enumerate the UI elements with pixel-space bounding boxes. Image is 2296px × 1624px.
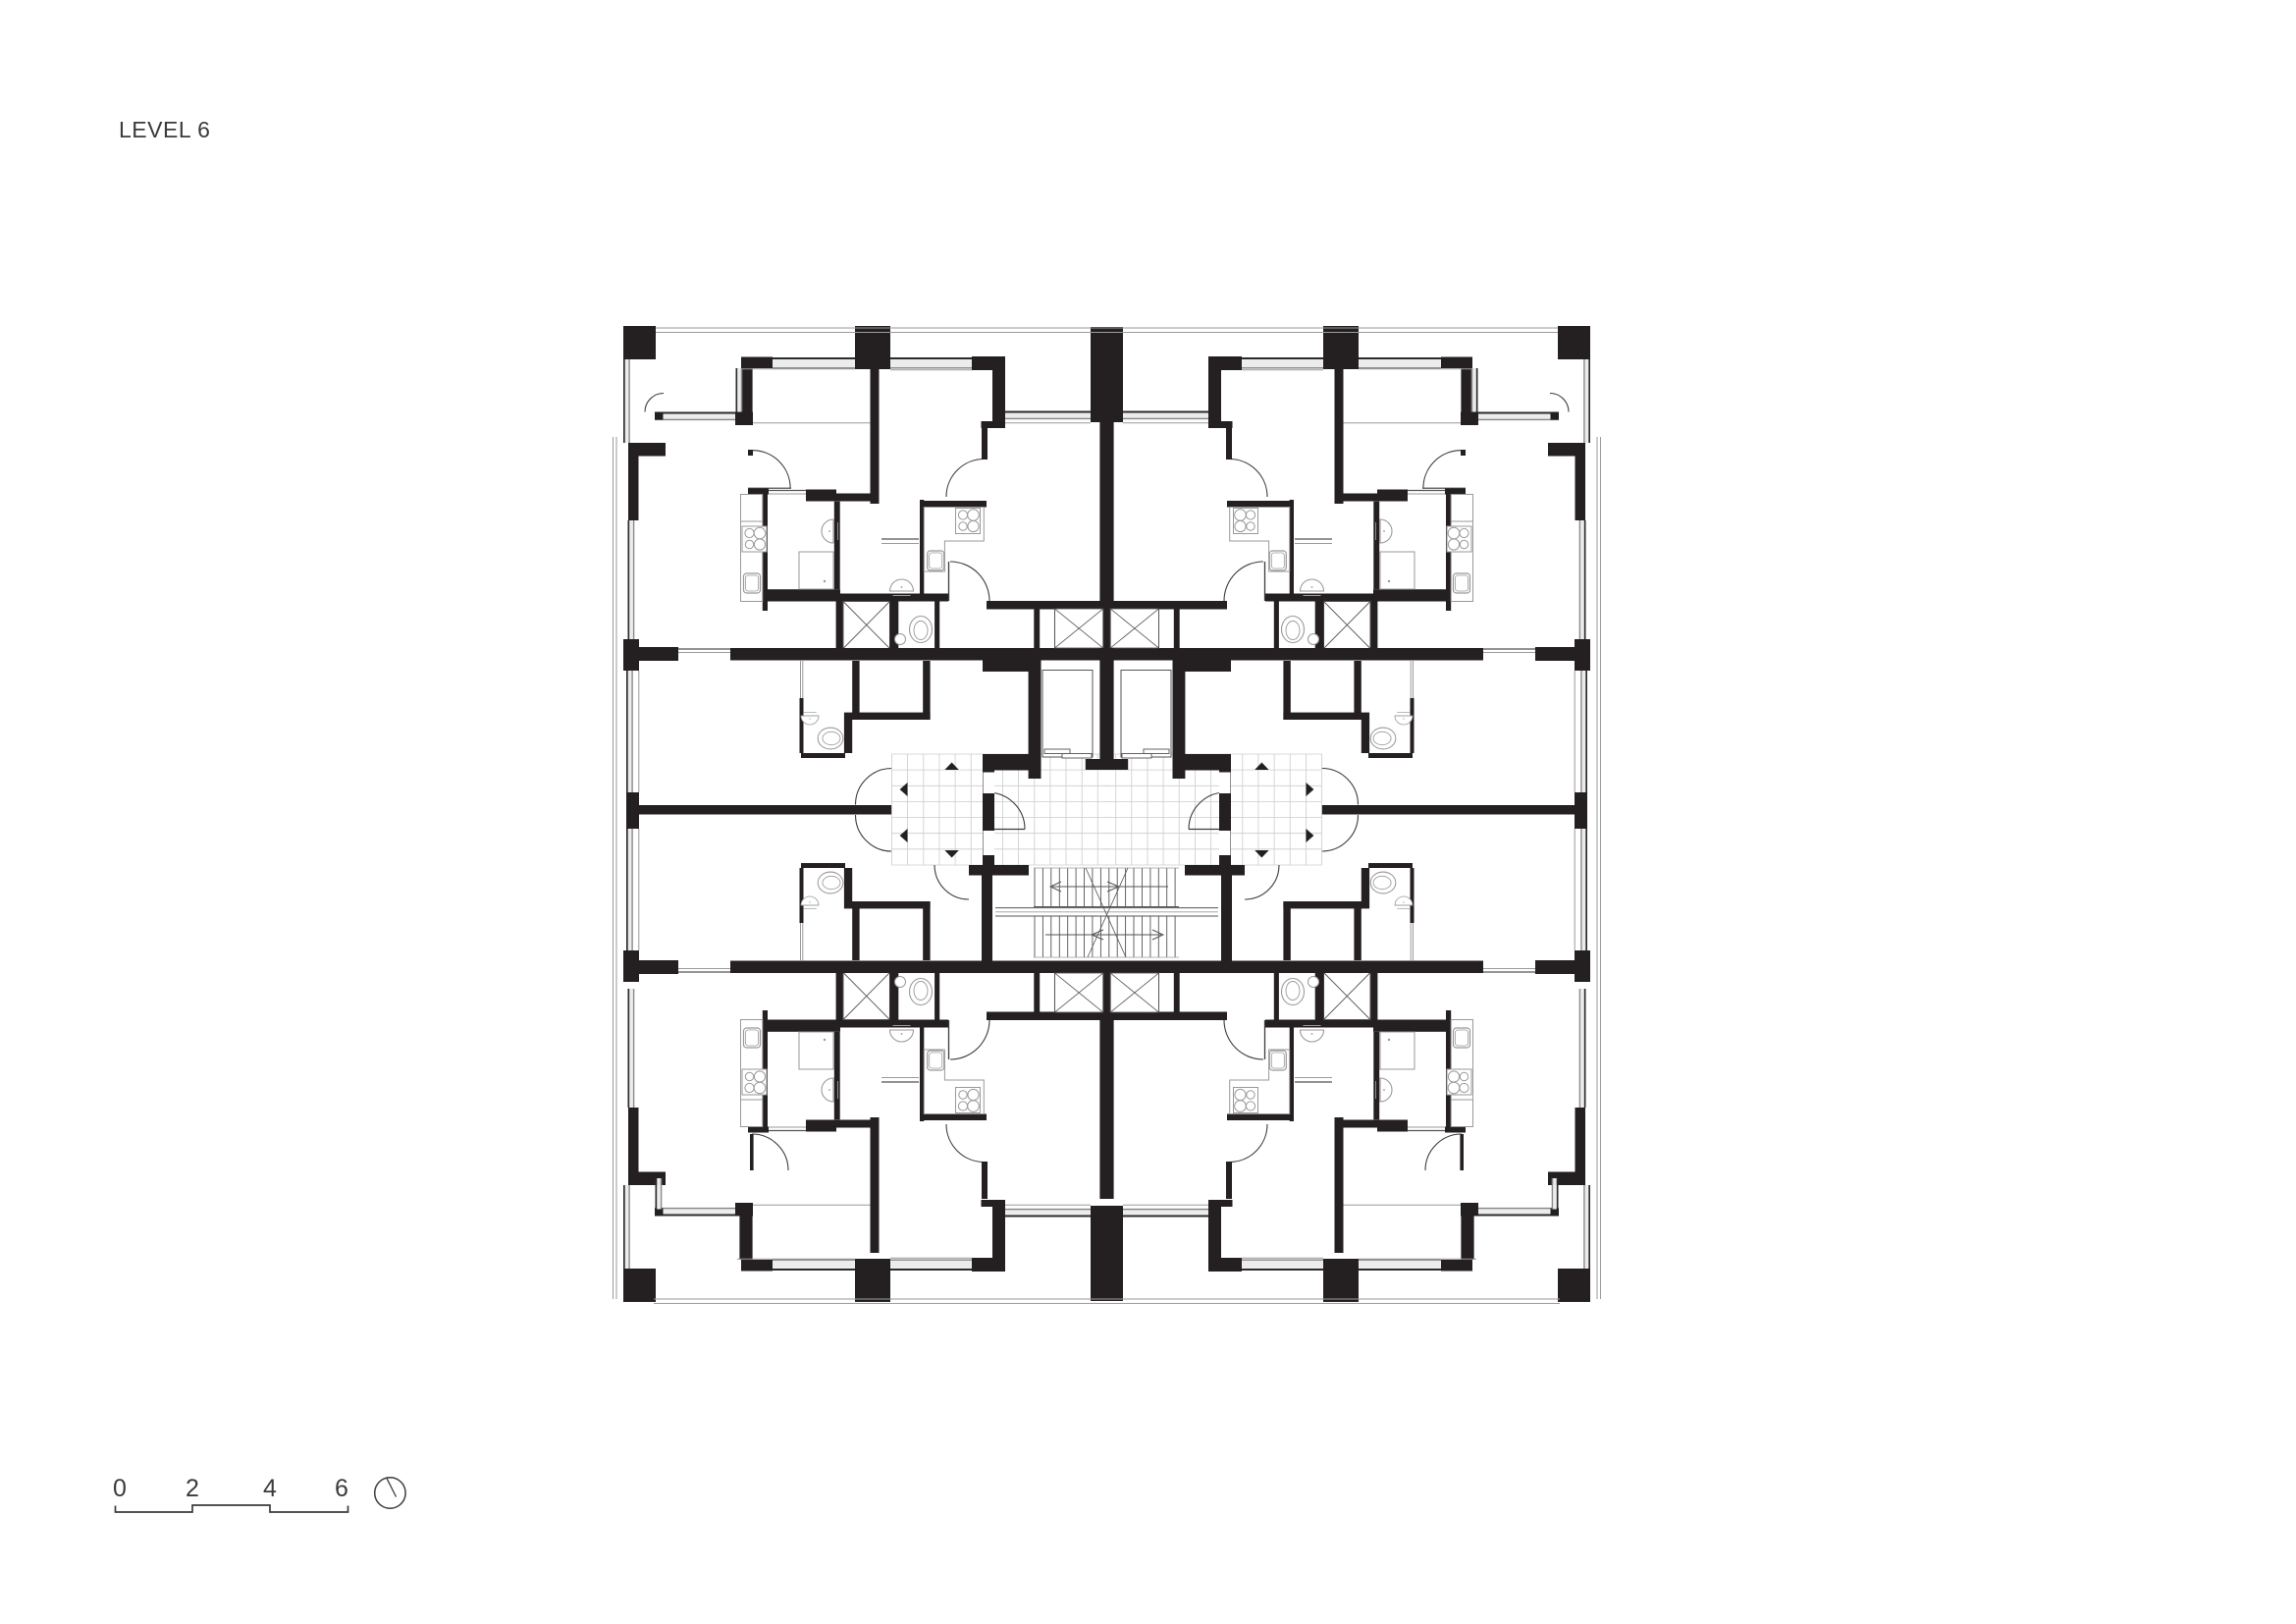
svg-text:0: 0 <box>113 1475 127 1502</box>
svg-text:2: 2 <box>186 1475 199 1502</box>
svg-text:4: 4 <box>263 1475 277 1502</box>
svg-text:LEVEL 6: LEVEL 6 <box>119 117 210 142</box>
svg-text:6: 6 <box>335 1475 348 1502</box>
